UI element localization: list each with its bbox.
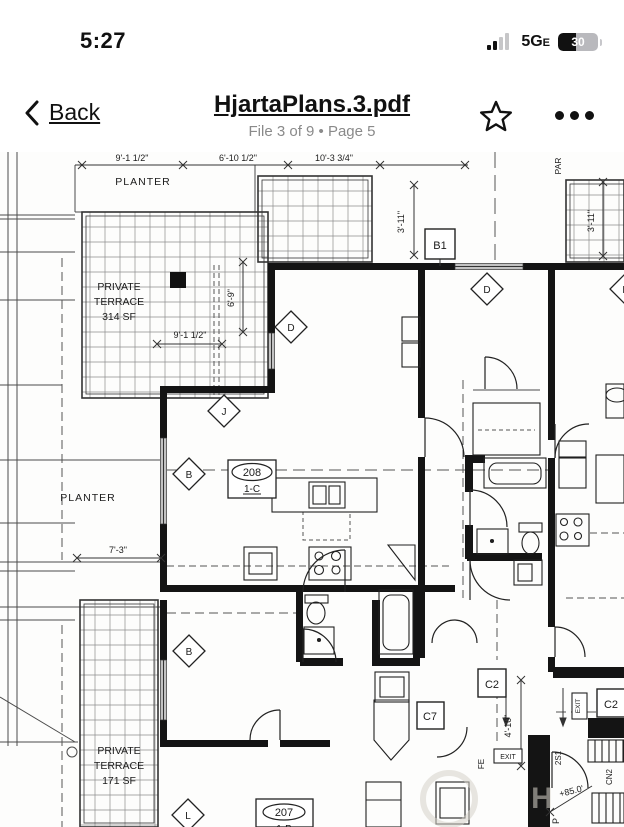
unit-number: 207 xyxy=(275,807,293,819)
dim-label: 10'-3 3/4" xyxy=(315,153,353,163)
planter-label: PLANTER xyxy=(115,176,170,188)
diamond-l: L xyxy=(185,811,191,822)
dim-label: 4'-10" xyxy=(503,715,513,738)
svg-text:H: H xyxy=(531,782,553,815)
dim-label: 6'-9" xyxy=(226,289,236,307)
diamond-j: J xyxy=(222,407,227,418)
floor-plan-page[interactable]: 9'-1 1/2" 6'-10 1/2" 10'-3 3/4" 3'-11" 3… xyxy=(0,152,624,827)
cellular-signal-icon xyxy=(487,33,513,51)
network-type: 5GE xyxy=(521,33,550,51)
keynote-c2: C2 xyxy=(485,679,499,691)
keynote-c7: C7 xyxy=(423,711,437,723)
unit-number: 208 xyxy=(243,467,261,479)
document-subtitle: File 3 of 9 • Page 5 xyxy=(0,123,624,140)
dim-label: 9'-1 1/2" xyxy=(116,153,149,163)
stair-label: 2S1 xyxy=(554,750,563,765)
dim-label: 3'-11" xyxy=(396,211,406,233)
nav-bar: Back HjartaPlans.3.pdf File 3 of 9 • Pag… xyxy=(0,85,624,152)
terrace-label: TERRACE xyxy=(94,296,144,308)
star-icon xyxy=(478,99,514,135)
favorite-button[interactable] xyxy=(478,99,514,140)
keynote-b1: B1 xyxy=(433,240,446,252)
ellipsis-icon xyxy=(555,111,564,120)
document-title: HjartaPlans.3.pdf xyxy=(0,91,624,119)
terrace-label: PRIVATE xyxy=(97,281,140,293)
battery-nub xyxy=(600,39,602,46)
exit-label: EXIT xyxy=(575,699,582,713)
diamond-d: D xyxy=(483,285,490,296)
unit-type: 1-C xyxy=(244,484,260,495)
diamond-b: B xyxy=(186,470,193,481)
more-options-button[interactable] xyxy=(555,111,594,120)
keynote-c2: C2 xyxy=(604,699,618,711)
column-marker xyxy=(170,272,186,288)
pdf-viewer-screen: 5:27 5GE 30 Back HjartaPlans.3.pdf xyxy=(0,0,624,827)
terrace-label: 314 SF xyxy=(102,311,136,323)
dim-label: 9'-1 1/2" xyxy=(174,330,207,340)
fire-extinguisher-label: FE xyxy=(477,759,486,769)
page-background xyxy=(0,152,624,827)
status-bar: 5:27 5GE 30 xyxy=(0,0,624,85)
parapet-label: PAR xyxy=(553,158,563,175)
diamond-b: B xyxy=(186,647,193,658)
dim-label: 3'-11" xyxy=(586,210,596,232)
p-label: P xyxy=(551,818,561,824)
terrace-label: TERRACE xyxy=(94,760,144,772)
battery-level: 30 xyxy=(558,33,598,51)
exit-label: EXIT xyxy=(500,754,516,761)
note-label: CN2 xyxy=(605,768,614,785)
dim-label: 6'-10 1/2" xyxy=(219,153,257,163)
terrace-label: PRIVATE xyxy=(97,745,140,757)
planter-label: PLANTER xyxy=(60,492,115,504)
terrace-label: 171 SF xyxy=(102,775,136,787)
diamond-d: D xyxy=(287,323,294,334)
dim-label: 7'-3" xyxy=(109,545,127,555)
clock: 5:27 xyxy=(80,28,126,54)
battery-icon: 30 xyxy=(558,33,598,51)
